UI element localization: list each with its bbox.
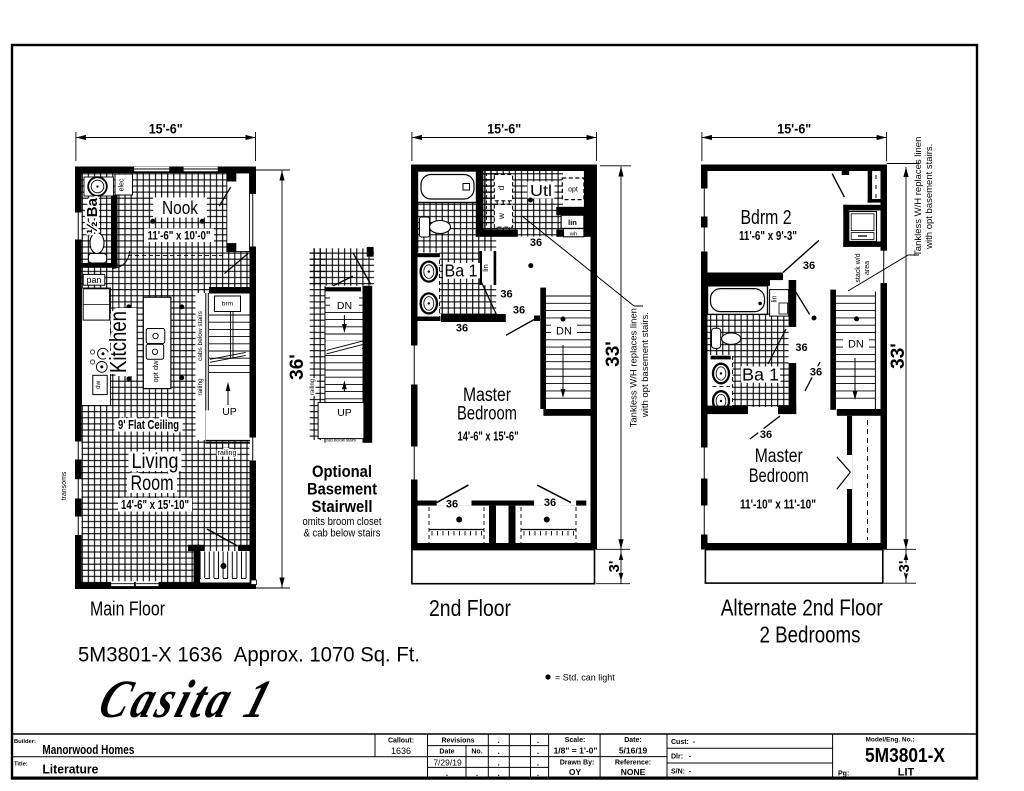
svg-text:lin: lin xyxy=(568,218,577,227)
svg-text:lin: lin xyxy=(481,264,490,272)
svg-text:15'-6": 15'-6" xyxy=(149,122,183,137)
svg-text:Alternate 2nd Floor: Alternate 2nd Floor xyxy=(721,595,883,621)
svg-text:3': 3' xyxy=(606,561,623,573)
svg-text:.: . xyxy=(476,769,478,778)
svg-text:½ Ba: ½ Ba xyxy=(84,197,101,234)
svg-text:dw: dw xyxy=(95,381,102,390)
svg-text:36: 36 xyxy=(456,323,468,335)
svg-text:Pg:: Pg: xyxy=(838,771,849,778)
svg-text:railing: railing xyxy=(310,379,316,395)
svg-text:Bedroom: Bedroom xyxy=(749,466,809,487)
svg-text:= Std. can light: = Std. can light xyxy=(555,673,615,683)
svg-text:33': 33' xyxy=(888,343,909,369)
svg-text:UP: UP xyxy=(222,406,237,418)
svg-text:w: w xyxy=(496,212,506,220)
svg-text:Reference:: Reference: xyxy=(615,760,651,767)
svg-text:Date:: Date: xyxy=(624,737,642,744)
svg-text:Tankless W/H replaces linen: Tankless W/H replaces linen xyxy=(629,308,640,427)
svg-text:11'-6" x 10'-0": 11'-6" x 10'-0" xyxy=(148,231,211,243)
svg-text:Stairwell: Stairwell xyxy=(312,497,373,516)
svg-text:.: . xyxy=(537,747,539,756)
svg-text:railing: railing xyxy=(197,378,204,396)
svg-text:lin: lin xyxy=(772,295,779,302)
svg-text:11'-10" x 11'-10": 11'-10" x 11'-10" xyxy=(740,498,816,512)
svg-text:Bdrm 2: Bdrm 2 xyxy=(741,207,792,229)
svg-text:Builder:: Builder: xyxy=(14,739,36,745)
svg-text:cab below stairs: cab below stairs xyxy=(326,438,356,443)
svg-text:OY: OY xyxy=(569,767,582,777)
svg-text:Master: Master xyxy=(755,446,804,467)
svg-text:.: . xyxy=(498,759,500,768)
svg-text:15'-6": 15'-6" xyxy=(777,122,811,137)
svg-text:5/16/19: 5/16/19 xyxy=(619,746,648,756)
svg-text:DN: DN xyxy=(848,339,864,351)
svg-text:NONE: NONE xyxy=(621,767,646,777)
svg-text:36: 36 xyxy=(500,289,512,301)
svg-text:36: 36 xyxy=(513,305,525,317)
svg-text:Scale:: Scale: xyxy=(565,737,586,744)
svg-text:Bedroom: Bedroom xyxy=(457,404,517,425)
svg-text:Ba 1: Ba 1 xyxy=(742,365,779,385)
svg-text:transoms: transoms xyxy=(61,471,68,500)
svg-text:Basement: Basement xyxy=(307,480,377,499)
svg-text:3': 3' xyxy=(896,561,913,573)
svg-text:railing: railing xyxy=(218,450,237,457)
svg-text:2 Bedrooms: 2 Bedrooms xyxy=(760,622,861,648)
svg-text:36: 36 xyxy=(803,260,815,272)
svg-text:Revisions: Revisions xyxy=(441,738,474,745)
svg-text:with opt basement stairs.: with opt basement stairs. xyxy=(924,144,935,250)
svg-text:LIT: LIT xyxy=(898,767,915,779)
svg-text:DN: DN xyxy=(337,300,352,312)
svg-text:Tankless W/H replaces linen: Tankless W/H replaces linen xyxy=(913,137,924,256)
svg-text:5M3801-X: 5M3801-X xyxy=(865,745,946,767)
svg-text:36: 36 xyxy=(530,237,542,249)
svg-text:.: . xyxy=(446,769,448,778)
svg-text:Utl: Utl xyxy=(530,183,552,200)
svg-text:Manorwood Homes: Manorwood Homes xyxy=(42,743,134,757)
svg-text:S/N: -: S/N: - xyxy=(671,769,692,776)
svg-text:Literature: Literature xyxy=(42,762,98,777)
svg-text:Title:: Title: xyxy=(14,762,28,768)
svg-text:Dlr: -: Dlr: - xyxy=(671,754,692,761)
svg-text:opt dw: opt dw xyxy=(151,360,160,383)
svg-text:36: 36 xyxy=(810,367,822,379)
svg-text:33': 33' xyxy=(603,341,624,367)
svg-text:stack w/d: stack w/d xyxy=(855,253,862,282)
svg-text:No.: No. xyxy=(471,749,482,756)
svg-text:opt: opt xyxy=(568,187,578,194)
svg-text:.: . xyxy=(537,759,539,768)
svg-text:Model/Eng. No.:: Model/Eng. No.: xyxy=(865,737,914,744)
svg-text:Ba 1: Ba 1 xyxy=(445,261,478,281)
svg-text:7/29/19: 7/29/19 xyxy=(433,758,462,768)
svg-text:Drawn By:: Drawn By: xyxy=(560,760,595,767)
svg-text:36: 36 xyxy=(760,429,772,441)
svg-text:36: 36 xyxy=(446,499,458,511)
svg-text:pan: pan xyxy=(86,275,101,285)
svg-text:36: 36 xyxy=(544,497,556,509)
svg-text:.: . xyxy=(498,736,500,745)
svg-text:14'-6" x 15'-6": 14'-6" x 15'-6" xyxy=(458,430,519,444)
svg-text:1636: 1636 xyxy=(391,746,411,756)
svg-text:Casita 1: Casita 1 xyxy=(92,669,281,728)
svg-text:UP: UP xyxy=(337,407,352,419)
svg-text:Optional: Optional xyxy=(312,462,372,481)
svg-text:Living: Living xyxy=(132,449,179,473)
svg-text:with opt basement stairs.: with opt basement stairs. xyxy=(640,312,651,418)
svg-text:5M3801-X 1636 Approx. 1070 Sq: 5M3801-X 1636 Approx. 1070 Sq. Ft. xyxy=(78,643,420,667)
svg-text:DN: DN xyxy=(556,326,572,338)
svg-text:Nook: Nook xyxy=(162,197,199,218)
svg-text:d: d xyxy=(496,185,506,190)
svg-text:Cust: -: Cust: - xyxy=(671,739,696,746)
svg-text:Main Floor: Main Floor xyxy=(90,598,165,621)
svg-text:14'-6" x 15'-10": 14'-6" x 15'-10" xyxy=(121,498,189,512)
svg-text:15'-6": 15'-6" xyxy=(487,122,521,137)
svg-text:& cab below stairs: & cab below stairs xyxy=(304,528,381,540)
svg-text:11'-6" x 9'-3": 11'-6" x 9'-3" xyxy=(739,229,797,243)
svg-text:Date: Date xyxy=(439,749,454,756)
svg-text:9' Flat Ceiling: 9' Flat Ceiling xyxy=(118,418,179,432)
svg-text:Callout:: Callout: xyxy=(388,738,414,745)
svg-text:omits broom closet: omits broom closet xyxy=(303,516,382,528)
svg-text:wh: wh xyxy=(569,232,577,238)
svg-text:cabs below stairs: cabs below stairs xyxy=(197,310,204,361)
svg-text:area: area xyxy=(864,261,871,275)
svg-text:36': 36' xyxy=(287,354,308,380)
svg-text:Room: Room xyxy=(131,471,174,495)
svg-text:.: . xyxy=(537,736,539,745)
svg-text:.: . xyxy=(498,747,500,756)
svg-text:36: 36 xyxy=(795,342,807,354)
svg-text:brm: brm xyxy=(222,301,233,308)
svg-text:1/8" = 1'-0": 1/8" = 1'-0" xyxy=(554,746,598,756)
svg-text:.: . xyxy=(537,769,539,778)
svg-text:.: . xyxy=(498,769,500,778)
svg-text:elec: elec xyxy=(119,178,126,191)
svg-text:2nd Floor: 2nd Floor xyxy=(429,595,511,621)
svg-text:Kitchen: Kitchen xyxy=(105,311,131,373)
